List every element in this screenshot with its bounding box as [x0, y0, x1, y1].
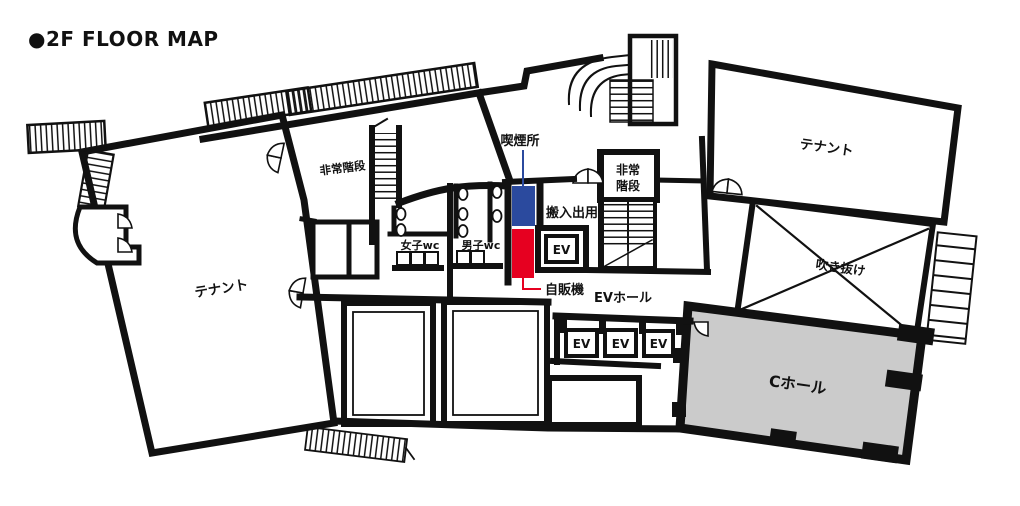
emergency-stairs-right-label-line1: 非常 [616, 162, 640, 177]
womens-wc-label: 女子wc [401, 238, 440, 252]
ev-bank: EV EV EV EVホール [549, 291, 690, 425]
corridor-wall [656, 180, 703, 181]
ev-box-3-label: EV [650, 337, 668, 351]
smoking-area-label: 喫煙所 [500, 133, 539, 149]
toilet-stall-icons [397, 251, 484, 265]
top-center-stairs-icon [569, 36, 676, 124]
tenant-right-room: テナント [710, 64, 958, 222]
bottom-room-2 [444, 302, 547, 424]
c-hall-room: Cホール [672, 306, 935, 463]
ev-hall-label: EVホール [594, 291, 652, 306]
ev-single: EV [538, 228, 586, 270]
ev-box-2-label: EV [612, 337, 630, 351]
ev-box-1-label: EV [573, 337, 591, 351]
floor-map-svg: テナント テナント 吹き抜け [0, 0, 1020, 506]
vending-machine-callout-line [523, 277, 541, 289]
corridor-wall [702, 139, 707, 270]
tenant-left-room: テナント [82, 115, 334, 453]
smoking-area-marker [512, 186, 535, 226]
emergency-stairs-right-label-line2: 階段 [616, 178, 641, 193]
ev-hall-lower-room [549, 378, 639, 425]
bottom-escalator-icon [305, 427, 414, 462]
vending-machine-marker [512, 229, 534, 278]
corridor-wall [589, 270, 708, 272]
loading-entrance-label: 搬入出用 [546, 205, 598, 221]
page-title: ●2F FLOOR MAP [28, 27, 219, 51]
ev-single-label: EV [553, 243, 571, 257]
floor-map-page: テナント テナント 吹き抜け [0, 0, 1020, 506]
emergency-stairs-left-label: 非常階段 [319, 158, 367, 178]
bottom-room-1 [344, 303, 433, 424]
right-outer-stairs-icon [926, 232, 976, 343]
mens-wc-label: 男子wc [462, 239, 501, 252]
vending-machine-label: 自販機 [545, 282, 584, 298]
